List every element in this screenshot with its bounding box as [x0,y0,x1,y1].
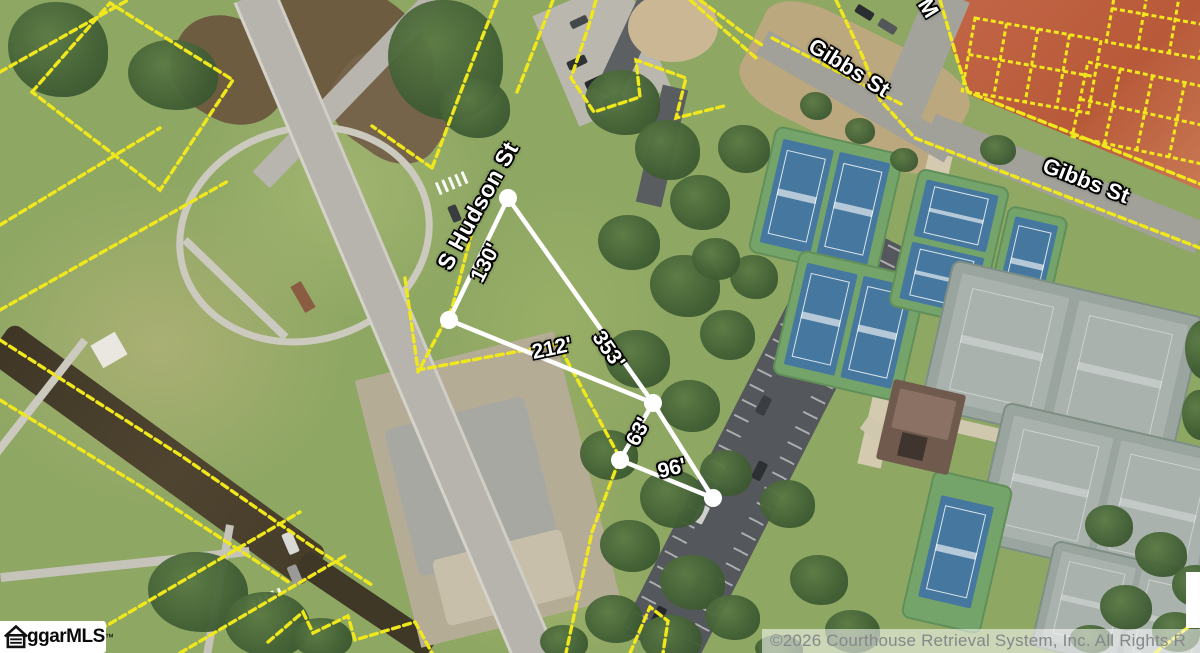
tree [600,520,660,572]
tree [700,310,755,360]
dirt-mound [628,0,718,62]
house-icon [2,623,30,651]
tree [692,238,740,280]
tree [8,2,108,97]
tree [718,125,770,173]
corner-white-box [1186,572,1200,628]
car [877,18,898,36]
watermark-bar: ©2026 Courthouse Retrieval System, Inc. … [762,629,1200,653]
tree [440,78,510,138]
satellite-map[interactable]: S Hudson St Gibbs St Gibbs St M 130' 212… [0,0,1200,653]
tree [760,480,815,528]
logo-trademark: ™ [105,632,114,642]
dimension-label-130: 130' [466,240,506,287]
tree [1100,585,1152,630]
creek [0,322,328,588]
logo-text: ggarMLS [27,626,105,648]
tree [890,148,918,172]
crosswalk [435,170,471,195]
tree [800,92,832,120]
tree [585,595,643,643]
car [751,460,769,481]
tennis-court [914,179,999,252]
tennis-court [918,495,994,608]
tree [660,380,720,432]
tree [540,625,588,653]
tree [292,618,352,653]
tree [670,175,730,230]
watermark-text: ©2026 Courthouse Retrieval System, Inc. … [762,631,1186,651]
tennis-court-enclosure [900,469,1014,636]
tree [128,40,218,110]
shed-building [90,332,127,369]
tree [845,118,875,144]
tree [790,555,848,605]
tree [705,595,760,640]
tree [598,215,660,270]
tree [700,450,752,496]
car [854,4,875,22]
tree [1085,505,1133,547]
mls-logo: ggarMLS™ [0,621,106,653]
tree [635,120,700,180]
tree [980,135,1016,165]
